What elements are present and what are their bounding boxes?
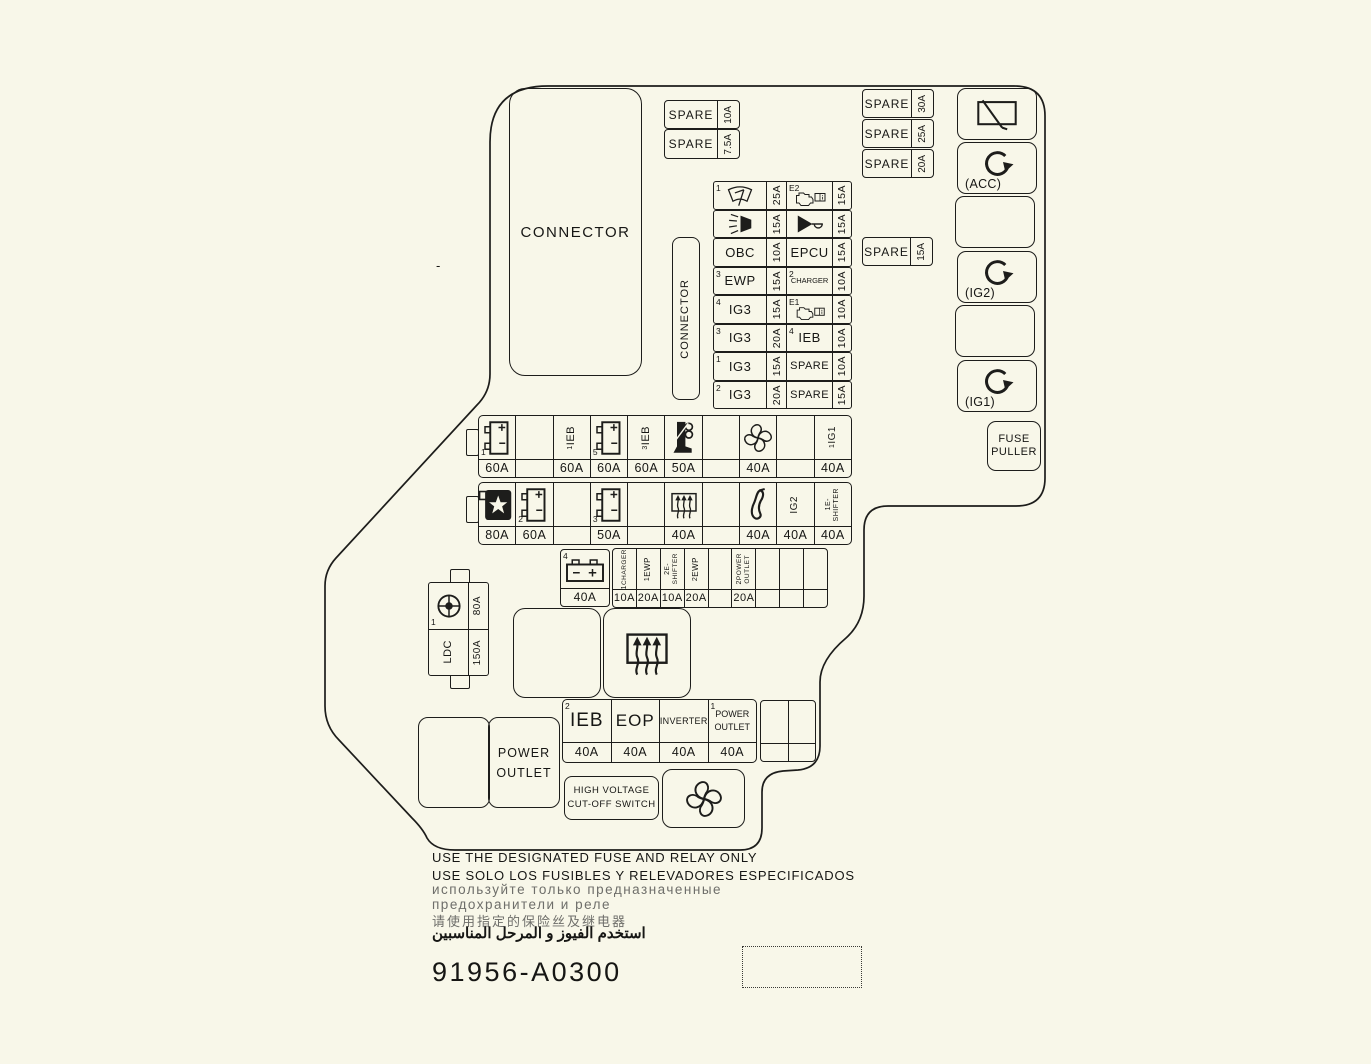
relay-blank	[513, 608, 601, 698]
relay-label: (IG1)	[965, 395, 995, 409]
fuse-rating	[789, 743, 816, 761]
fuse-cell: 1	[714, 182, 766, 209]
fuse-cell: EPCU	[786, 239, 832, 266]
battery-icon	[594, 418, 624, 458]
fuse-rating: 80A	[468, 583, 488, 629]
fuse-rating	[628, 526, 664, 544]
fuse-label: 1CHARGER	[621, 549, 629, 589]
fuse-rating: 50A	[591, 526, 627, 544]
fuse-cell: 40A	[664, 483, 701, 544]
fuse-label: SHIFTER	[833, 488, 840, 521]
fuse-label: 2POWER	[736, 553, 744, 584]
fuse-cell: 2CHARGER	[786, 268, 832, 295]
hv-cutoff-switch-box: HIGH VOLTAGE CUT-OFF SWITCH	[564, 776, 659, 820]
battery-icon	[519, 485, 549, 525]
fuse-rating	[777, 459, 813, 477]
spare-fuse: SPARE 30A	[862, 89, 934, 118]
fuse-label: SPARE	[863, 90, 911, 117]
battery-4-fuse: 4 40A	[560, 549, 610, 607]
fuse-cell	[627, 483, 664, 544]
fuse-rating: 60A	[516, 526, 552, 544]
ldc-top-row: 1 80A	[429, 583, 488, 629]
fuse-rating: 10A	[766, 239, 786, 266]
fuse-number: 5	[593, 447, 598, 457]
fuse-cell: 2IG3	[714, 382, 766, 409]
fuse-cell: 1 POWER OUTLET 40A	[708, 700, 757, 762]
fuse-number: 2	[789, 269, 794, 279]
fuse-row-b: 80A 2 60A 3 50A 40A 40A IG2 40A	[478, 482, 852, 545]
headlamp-washer-icon	[724, 212, 757, 236]
fuse-grid-row: 1IG3 15A SPARE 10A	[713, 352, 852, 381]
fuse-rating: 60A	[628, 459, 664, 477]
fuse-rating: 15A	[766, 211, 786, 238]
fuse-cell: INVERTER 40A	[659, 700, 708, 762]
relay-acc: (ACC)	[957, 142, 1037, 194]
fuse-cell: E2	[786, 182, 832, 209]
notice-es: USE SOLO LOS FUSIBLES Y RELEVADORES ESPE…	[432, 868, 855, 883]
fuse-grid-row: 3EWP 15A 2CHARGER 10A	[713, 267, 852, 296]
rear-wiper-icon	[971, 97, 1023, 131]
fuse-rating: 15A	[766, 353, 786, 380]
fuse-cell: 1EWP 20A	[636, 549, 660, 607]
fuse-rating	[780, 589, 803, 607]
fuse-rating: 7.5A	[717, 130, 739, 158]
fuse-label: SPARE	[863, 120, 911, 147]
fuse-number: 1	[716, 183, 721, 193]
fuse-cell	[776, 416, 813, 477]
fuse-cell: 1E- SHIFTER 40A	[814, 483, 851, 544]
connector-label: CONNECTOR	[680, 279, 692, 359]
power-outlet-box: POWER OUTLET	[488, 717, 560, 808]
fuse-grid-row: OBC 10A EPCU 15A	[713, 238, 852, 267]
fuse-rating: 15A	[832, 182, 851, 209]
fuse-cell: 2EWP 20A	[684, 549, 708, 607]
fuse-label: OUTLET	[714, 721, 750, 734]
fuse-cell: 1IG3	[714, 353, 766, 380]
fuse-label: POWER	[715, 708, 749, 721]
fuse-rating: 40A	[777, 526, 813, 544]
fuse-cell	[702, 483, 739, 544]
fuse-label: SHIFTER	[673, 553, 680, 584]
fuse-rating	[554, 526, 590, 544]
fuse-rating	[516, 459, 552, 477]
fuse-puller-label: PULLER	[991, 446, 1037, 459]
ldc-bottom-row: LDC 150A	[429, 629, 488, 676]
battery-icon	[482, 418, 512, 458]
relay-blank	[418, 717, 490, 808]
relay-rear-wiper	[957, 88, 1037, 140]
fuse-number: 2	[716, 383, 721, 393]
fuse-cell: 40A	[739, 416, 776, 477]
fuse-cell: 4IEB	[786, 325, 832, 352]
fuse-cell: 3EWP	[714, 268, 766, 295]
fuse-label: IEB	[570, 710, 604, 732]
relay-ig1: (IG1)	[957, 360, 1037, 412]
fuse-rating: 50A	[665, 459, 701, 477]
fuse-rating: 40A	[815, 526, 851, 544]
fuse-rating: 40A	[612, 742, 660, 762]
fuse-label: 1IEB	[566, 426, 578, 450]
fuse-puller-box: FUSE PULLER	[987, 421, 1041, 471]
fuse-rating: 10A	[832, 353, 851, 380]
fuse-cell	[779, 549, 803, 607]
fuse-rating: 25A	[911, 120, 933, 147]
battery-icon	[564, 557, 606, 584]
fuse-rating	[756, 589, 779, 607]
fuse-rating: 15A	[766, 296, 786, 323]
fuse-row-c: 1CHARGER 10A 1EWP 20A 2E- SHIFTER 10A 2E…	[612, 548, 828, 608]
fuse-cell: E1	[786, 296, 832, 323]
fuse-rating: 15A	[832, 211, 851, 238]
fuse-cell: 1CHARGER 10A	[613, 549, 636, 607]
fuse-cell: 2POWER OUTLET 20A	[731, 549, 755, 607]
horn-icon	[791, 213, 829, 235]
fuse-rating: 40A	[815, 459, 851, 477]
star-module-icon	[478, 486, 516, 524]
fuse-cell	[714, 211, 766, 238]
fuse-number: E1	[789, 297, 799, 307]
fuse-cell	[755, 549, 779, 607]
fuse-rating: 60A	[479, 459, 515, 477]
fuse-rating: 20A	[685, 589, 708, 607]
fuse-cell	[761, 701, 788, 761]
fuse-cell: 3 50A	[590, 483, 627, 544]
fuse-number: 2	[518, 514, 523, 524]
fuse-cell: 1	[429, 583, 468, 629]
spare-fuse: SPARE 10A	[664, 100, 740, 129]
hv-switch-label: HIGH VOLTAGE	[574, 784, 650, 798]
fuse-rating: 40A	[563, 742, 611, 762]
power-outlet-label: OUTLET	[496, 763, 551, 783]
fan-icon	[740, 420, 776, 456]
fuse-cell: 3IG3	[714, 325, 766, 352]
relay-blank	[955, 196, 1035, 248]
fuse-label: EOP	[616, 711, 655, 731]
fuse-cell: 2E- SHIFTER 10A	[660, 549, 684, 607]
fuse-rating: 15A	[910, 238, 932, 265]
fuse-rating: 15A	[832, 239, 851, 266]
fuse-rating: 10A	[717, 101, 739, 128]
fuse-cell	[788, 701, 816, 761]
spare-fuse: SPARE 15A	[862, 237, 933, 266]
fuse-rating: 150A	[468, 630, 488, 676]
fuse-rating: 10A	[613, 589, 636, 607]
relay-ig2: (IG2)	[957, 251, 1037, 303]
fuse-rating: 15A	[832, 382, 851, 409]
fuse-grid-row: 4IG3 15A E1 10A	[713, 295, 852, 324]
fuse-cell: 2 IEB 40A	[563, 700, 611, 762]
connector-label: CONNECTOR	[521, 224, 631, 241]
fuse-number: 1	[716, 354, 721, 364]
power-outlet-label: POWER	[498, 743, 550, 763]
hv-switch-label: CUT-OFF SWITCH	[567, 798, 655, 812]
fuse-rating: 10A	[661, 589, 684, 607]
fuse-cell: 50A	[664, 416, 701, 477]
fuse-rating: 25A	[766, 182, 786, 209]
fuse-rating: 20A	[911, 150, 933, 177]
fuse-cell: 40A	[739, 483, 776, 544]
fuse-rating: 40A	[740, 459, 776, 477]
fuse-label: LDC	[429, 630, 468, 676]
fuse-cell	[702, 416, 739, 477]
fuse-number: 1	[431, 617, 436, 627]
fuse-number: 1	[711, 701, 716, 713]
fuse-rating: 20A	[766, 382, 786, 409]
fuse-rating	[703, 526, 739, 544]
fuse-label: SPARE	[863, 150, 911, 177]
relay-label: (ACC)	[965, 177, 1001, 191]
fuse-box-diagram: - CONNECTOR SPARE 10A SPARE 7.5A SPARE 3…	[0, 0, 1371, 1064]
fuse-cell: IG2 40A	[776, 483, 813, 544]
fuse-rating	[709, 589, 732, 607]
spare-fuse: SPARE 20A	[862, 149, 934, 178]
fuse-rating: 10A	[832, 296, 851, 323]
fuse-cell: OBC	[714, 239, 766, 266]
connector-tab	[450, 674, 470, 689]
fuse-cell: SPARE	[786, 382, 832, 409]
defroster-icon	[668, 486, 700, 524]
wiper-icon	[722, 184, 758, 207]
fan-icon	[681, 776, 727, 822]
relay-defroster	[603, 608, 691, 698]
fuse-rating	[761, 743, 788, 761]
fuse-rating: 20A	[637, 589, 660, 607]
defroster-icon	[621, 627, 673, 679]
fuse-rating: 40A	[740, 526, 776, 544]
fuse-cell: 5 60A	[590, 416, 627, 477]
fuse-rating: 10A	[832, 268, 851, 295]
battery-icon	[594, 485, 624, 525]
fuse-cell: SPARE	[786, 353, 832, 380]
fuse-label: 1E-	[825, 498, 832, 510]
fuse-cell: 4IG3	[714, 296, 766, 323]
spare-fuse: SPARE 25A	[862, 119, 934, 148]
notice-ru: предохранители и реле	[432, 897, 611, 912]
notice-ru: используйте только предназначенные	[432, 882, 722, 897]
fuse-cell	[786, 211, 832, 238]
fuse-grid-row: 3IG3 20A 4IEB 10A	[713, 324, 852, 353]
relay-label: (IG2)	[965, 286, 995, 300]
fuse-label: 3IEB	[641, 426, 653, 450]
fuse-label: 1EWP	[644, 557, 652, 581]
fuse-label: IG2	[790, 496, 801, 514]
fuse-number: 4	[716, 297, 721, 307]
fuse-rating	[703, 459, 739, 477]
fuse-grid-row: 2IG3 20A SPARE 15A	[713, 381, 852, 410]
fuse-number: 4	[563, 551, 568, 561]
fuse-cell	[803, 549, 827, 607]
fuse-cell: 4 40A	[561, 550, 609, 606]
fuse-number: E2	[789, 183, 799, 193]
notice-en: USE THE DESIGNATED FUSE AND RELAY ONLY	[432, 850, 757, 865]
fuse-number: 3	[716, 326, 721, 336]
fuse-rating: 10A	[832, 325, 851, 352]
fuse-row-a: 1 60A 1IEB 60A 5 60A 3IEB 60A 50A 40A	[478, 415, 852, 478]
fuse-number: 1	[481, 447, 486, 457]
fuse-cell: 80A	[479, 483, 515, 544]
label-placeholder-box	[742, 946, 862, 988]
part-number: 91956-A0300	[432, 957, 622, 988]
connector-main-box: CONNECTOR	[509, 88, 642, 376]
fuse-rating: 40A	[665, 526, 701, 544]
steering-icon	[434, 591, 464, 621]
fuse-label: OUTLET	[745, 555, 752, 584]
fuse-rating: 80A	[479, 526, 515, 544]
relay-blank	[955, 305, 1035, 357]
fuse-row-d-extension	[760, 700, 816, 762]
fuse-puller-label: FUSE	[998, 433, 1029, 446]
fuse-grid-row: 1 25A E2 15A	[713, 181, 852, 210]
dash-mark: -	[436, 258, 440, 273]
fuse-number: 3	[593, 514, 598, 524]
fuse-rating: 20A	[732, 589, 755, 607]
fuse-rating	[804, 589, 827, 607]
fuse-cell	[553, 483, 590, 544]
fuse-number: 3	[716, 269, 721, 279]
fuse-cell: 1IEB 60A	[553, 416, 590, 477]
notice-ar: استخدم الفيوز و المرحل المناسبين	[432, 924, 646, 942]
fuse-rating: 40A	[709, 742, 757, 762]
fuse-cell: 2 60A	[515, 483, 552, 544]
fuse-label: 1IG1	[828, 426, 839, 448]
fuse-cell: EOP 40A	[611, 700, 660, 762]
fan-box	[662, 769, 745, 828]
spare-fuse: SPARE 7.5A	[664, 129, 740, 159]
fuse-rating: 30A	[911, 90, 933, 117]
pump-icon	[670, 417, 698, 459]
fuse-rating: 60A	[591, 459, 627, 477]
fuse-rating: 20A	[766, 325, 786, 352]
fuse-rating: 40A	[561, 588, 609, 606]
fuse-rating: 15A	[766, 268, 786, 295]
fuse-rating: 60A	[554, 459, 590, 477]
fuse-grid-row: 15A 15A	[713, 210, 852, 239]
connector-side-box: CONNECTOR	[672, 237, 700, 400]
fuse-label: 2EWP	[692, 557, 700, 581]
fuse-cell: 3IEB 60A	[627, 416, 664, 477]
fuse-cell: 1IG1 40A	[814, 416, 851, 477]
fuse-label: SPARE	[665, 130, 717, 158]
fuse-cell	[708, 549, 732, 607]
fuse-cell	[515, 416, 552, 477]
fuse-row-d: 2 IEB 40A EOP 40A INVERTER 40A 1 POWER O…	[562, 699, 757, 763]
fuse-rating: 40A	[660, 742, 708, 762]
fuse-number: 2	[565, 701, 570, 711]
ldc-fuse-block: 1 80A LDC 150A	[428, 582, 489, 676]
fuse-number: 4	[789, 326, 794, 336]
fuse-cell: 1 60A	[479, 416, 515, 477]
fuse-label: INVERTER	[660, 716, 708, 726]
fuse-label: SPARE	[665, 101, 717, 128]
fuse-label: SPARE	[863, 238, 910, 265]
hook-icon	[746, 485, 770, 525]
